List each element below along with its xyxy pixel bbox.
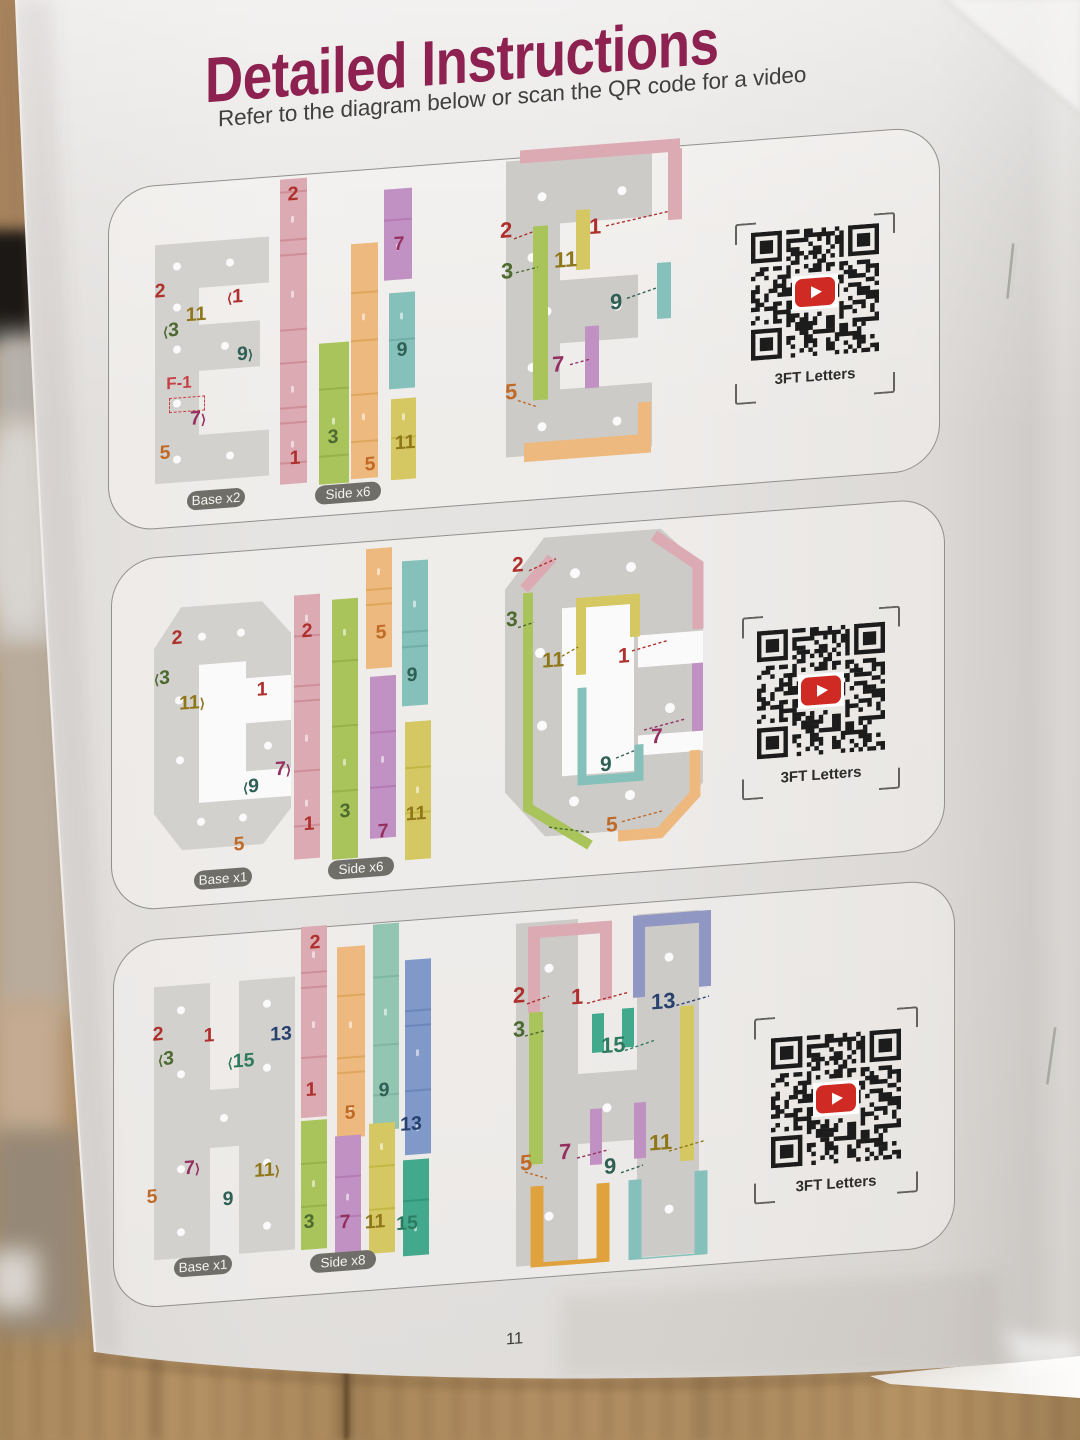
- svg-text:11: 11: [649, 1129, 672, 1156]
- svg-text:5: 5: [505, 379, 517, 405]
- svg-text:5: 5: [606, 813, 618, 837]
- svg-text:1: 1: [618, 644, 630, 668]
- svg-text:7: 7: [552, 351, 564, 377]
- svg-text:3: 3: [513, 1016, 525, 1042]
- svg-text:9: 9: [610, 289, 622, 315]
- svg-text:2: 2: [500, 217, 512, 243]
- svg-text:13: 13: [651, 988, 675, 1015]
- svg-text:7: 7: [651, 725, 663, 749]
- svg-text:2: 2: [513, 982, 525, 1008]
- svg-text:11: 11: [542, 648, 564, 673]
- svg-text:1: 1: [571, 984, 583, 1010]
- svg-text:1: 1: [589, 213, 601, 239]
- svg-text:11: 11: [554, 246, 577, 273]
- svg-text:3: 3: [501, 258, 513, 284]
- svg-text:5: 5: [520, 1150, 532, 1176]
- svg-text:9: 9: [604, 1153, 616, 1179]
- svg-text:3: 3: [506, 608, 518, 632]
- svg-text:2: 2: [512, 553, 524, 577]
- svg-text:15: 15: [601, 1031, 625, 1058]
- svg-text:7: 7: [559, 1139, 571, 1165]
- svg-text:9: 9: [600, 752, 612, 776]
